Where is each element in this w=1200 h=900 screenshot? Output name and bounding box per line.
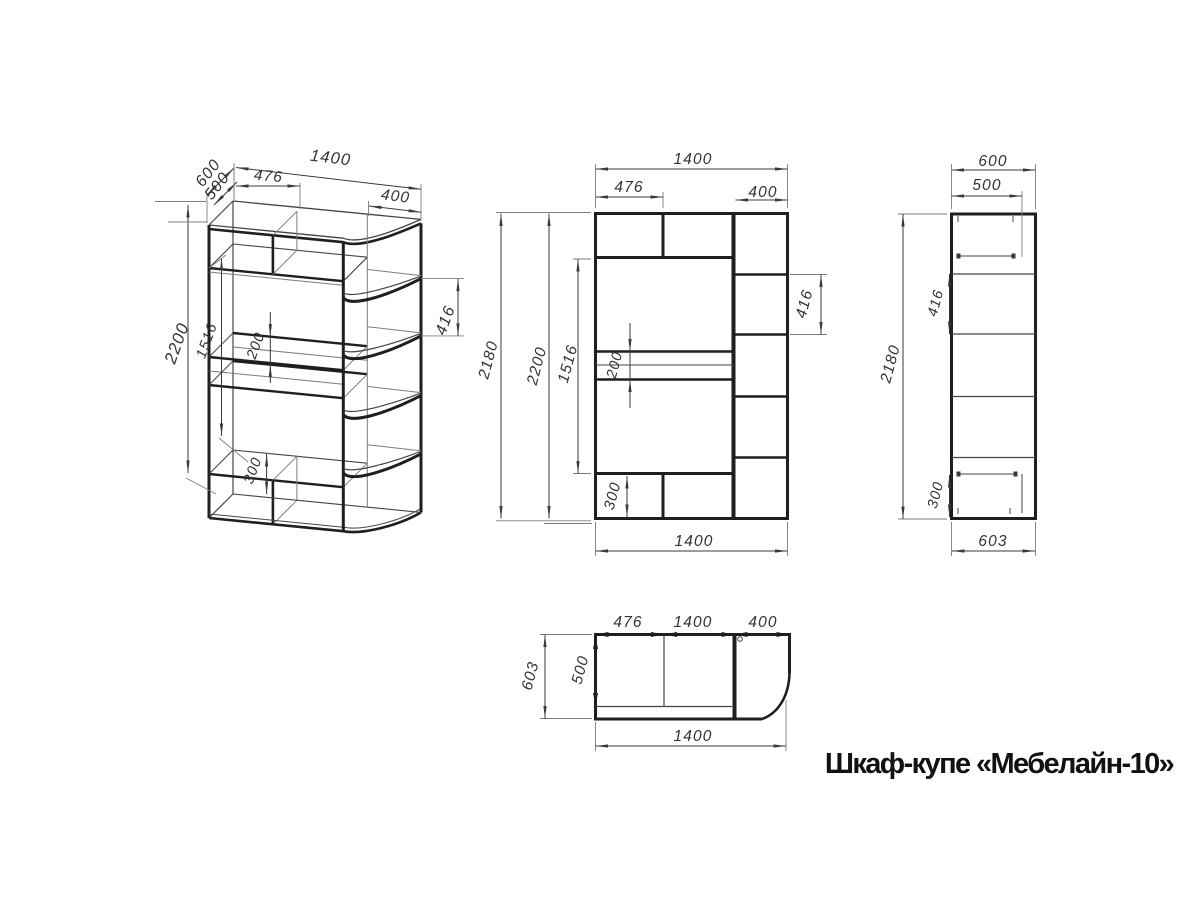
svg-text:476: 476 [614, 179, 643, 196]
svg-text:1400: 1400 [674, 151, 713, 168]
svg-text:1400: 1400 [674, 614, 713, 631]
svg-text:400: 400 [748, 184, 777, 201]
svg-text:Шкаф-купе «Мебелайн-10»: Шкаф-купе «Мебелайн-10» [825, 748, 1174, 780]
svg-text:1400: 1400 [675, 533, 714, 550]
svg-text:600: 600 [978, 153, 1007, 170]
svg-text:400: 400 [380, 186, 411, 206]
svg-text:1400: 1400 [674, 728, 713, 745]
svg-text:500: 500 [972, 177, 1001, 194]
svg-text:400: 400 [748, 614, 777, 631]
svg-text:476: 476 [613, 614, 642, 631]
svg-text:603: 603 [978, 533, 1007, 550]
